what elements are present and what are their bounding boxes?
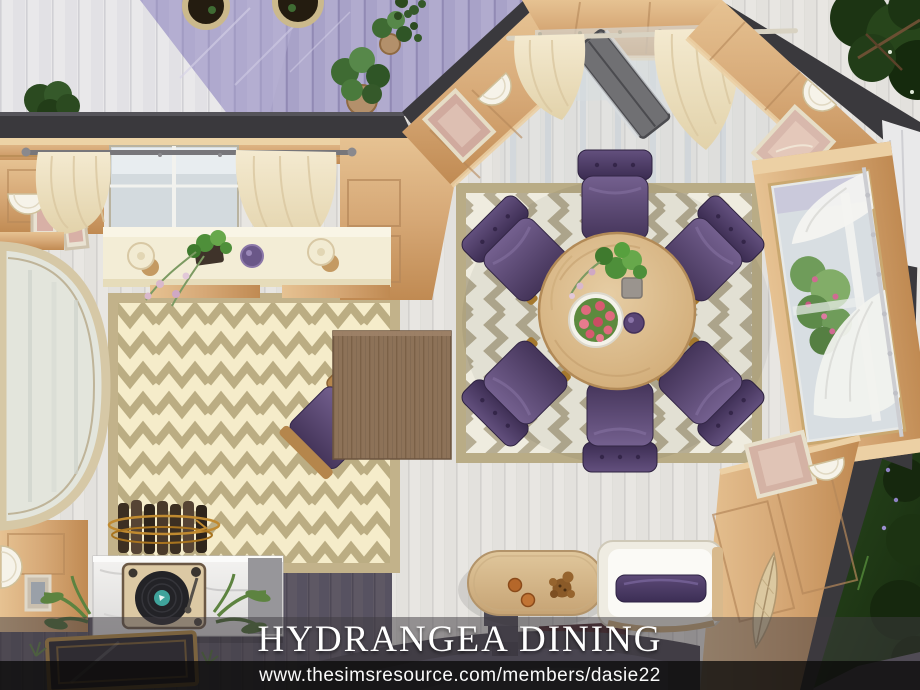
title-banner: HYDRANGEA DINING [0,617,920,661]
oval-coffee-table[interactable] [468,551,604,615]
dining-chair-top[interactable] [578,150,652,245]
dining-chair-bottom[interactable] [583,377,657,472]
window-seat-console[interactable] [103,227,391,306]
purple-pillow[interactable] [616,575,706,602]
purple-vase[interactable] [624,313,644,333]
round-dining-table[interactable] [539,233,695,389]
rose-bowl-centerpiece[interactable] [569,293,623,347]
room-render [0,0,920,690]
bay-window-left[interactable] [110,146,238,232]
bottom-right-art[interactable] [746,432,815,496]
firewood-bundle[interactable] [109,500,219,555]
page-title: HYDRANGEA DINING [257,618,662,661]
creator-url: www.thesimsresource.com/members/dasie22 [259,665,661,687]
square-wood-desk[interactable] [333,331,451,459]
purple-bowl[interactable] [241,245,263,267]
url-banner: www.thesimsresource.com/members/dasie22 [0,661,920,690]
screenshot-root: HYDRANGEA DINING www.thesimsresource.com… [0,0,920,690]
